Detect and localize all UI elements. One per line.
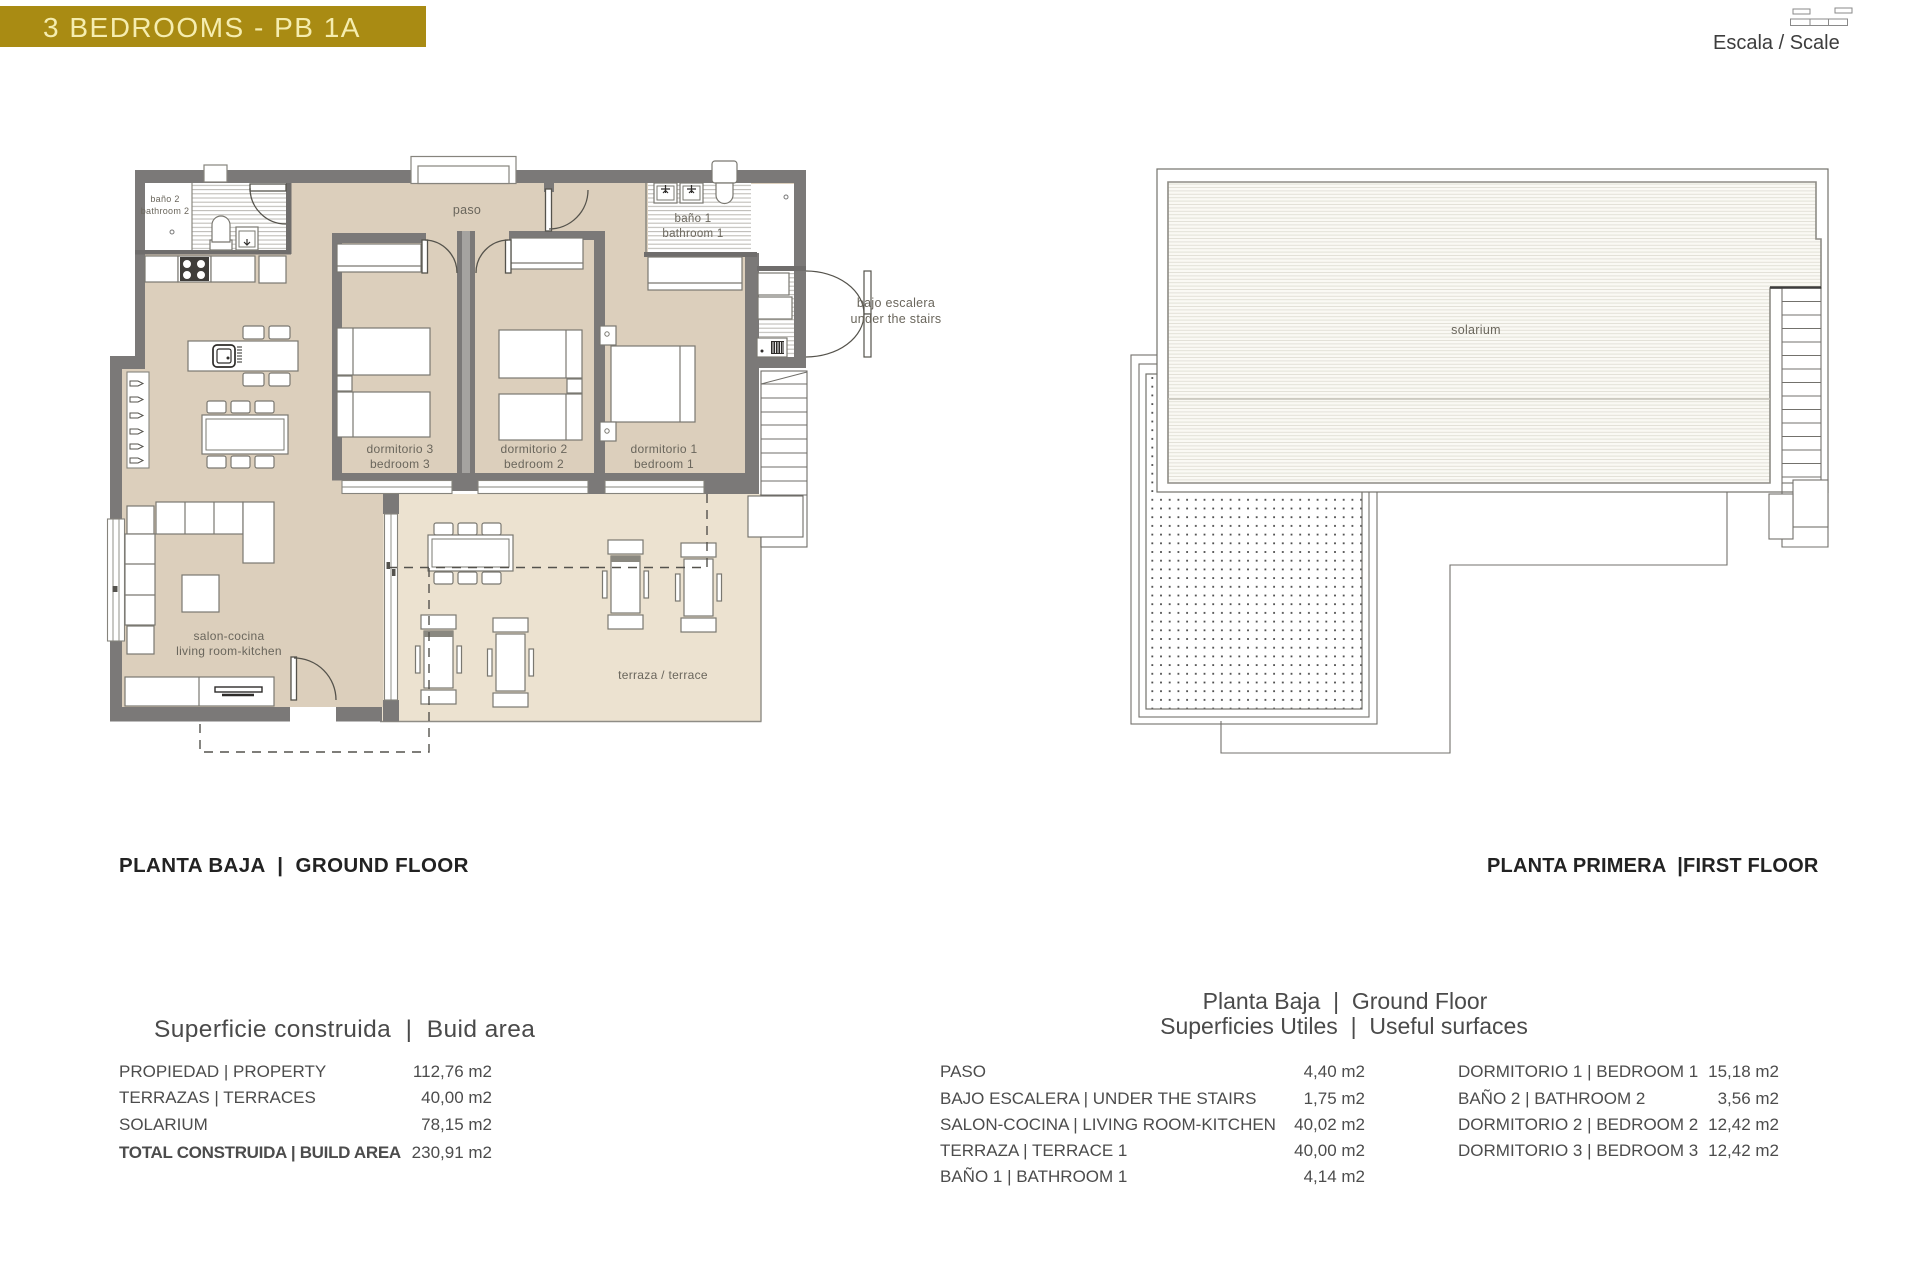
svg-text:bedroom 2: bedroom 2 [504,457,564,471]
svg-text:SOLARIUM: SOLARIUM [119,1115,208,1134]
svg-text:Planta Baja | Ground Floor: Planta Baja | Ground Floor [1203,988,1488,1014]
svg-text:4,40 m2: 4,40 m2 [1304,1062,1365,1081]
svg-text:BAÑO 2 | BATHROOM 2: BAÑO 2 | BATHROOM 2 [1458,1089,1645,1108]
svg-text:40,00 m2: 40,00 m2 [1294,1141,1365,1160]
svg-text:BAJO ESCALERA | UNDER THE STA: BAJO ESCALERA | UNDER THE STAIRS [940,1089,1256,1108]
svg-text:BAÑO 1 | BATHROOM 1: BAÑO 1 | BATHROOM 1 [940,1167,1127,1186]
svg-text:DORMITORIO 3 | BEDROOM 3: DORMITORIO 3 | BEDROOM 3 [1458,1141,1698,1160]
svg-text:3 BEDROOMS - PB 1A: 3 BEDROOMS - PB 1A [43,12,361,43]
svg-text:Escala / Scale: Escala / Scale [1713,32,1840,54]
svg-text:40,02 m2: 40,02 m2 [1294,1115,1365,1134]
svg-text:Superficie construida | Buid: Superficie construida | Buid area [154,1016,535,1043]
svg-text:PLANTA BAJA | GROUND FLOOR: PLANTA BAJA | GROUND FLOOR [119,854,469,877]
svg-text:TERRAZAS | TERRACES: TERRAZAS | TERRACES [119,1088,316,1107]
svg-text:dormitorio 3: dormitorio 3 [367,442,434,456]
svg-text:12,42 m2: 12,42 m2 [1708,1115,1779,1134]
svg-text:PROPIEDAD | PROPERTY: PROPIEDAD | PROPERTY [119,1062,326,1081]
svg-text:baño 1: baño 1 [675,213,712,225]
svg-text:living room-kitchen: living room-kitchen [176,644,282,658]
svg-text:terraza / terrace: terraza / terrace [618,668,708,682]
svg-text:bathroom 2: bathroom 2 [141,206,190,216]
svg-text:1,75 m2: 1,75 m2 [1304,1089,1365,1108]
svg-text:SALON-COCINA | LIVING ROOM-KI: SALON-COCINA | LIVING ROOM-KITCHEN [940,1115,1276,1134]
svg-text:78,15 m2: 78,15 m2 [421,1115,492,1134]
svg-text:112,76 m2: 112,76 m2 [413,1062,492,1081]
svg-text:40,00 m2: 40,00 m2 [421,1088,492,1107]
svg-text:paso: paso [453,203,481,217]
svg-text:3,56 m2: 3,56 m2 [1718,1089,1779,1108]
svg-text:solarium: solarium [1451,323,1501,337]
svg-text:TERRAZA | TERRACE 1: TERRAZA | TERRACE 1 [940,1141,1127,1160]
svg-text:PASO: PASO [940,1062,986,1081]
svg-text:DORMITORIO 1 | BEDROOM 1: DORMITORIO 1 | BEDROOM 1 [1458,1062,1698,1081]
svg-text:bathroom 1: bathroom 1 [662,228,723,240]
svg-text:DORMITORIO 2 | BEDROOM 2: DORMITORIO 2 | BEDROOM 2 [1458,1115,1698,1134]
svg-text:TOTAL CONSTRUIDA | BUILD AREA: TOTAL CONSTRUIDA | BUILD AREA [119,1143,401,1162]
svg-text:bedroom 3: bedroom 3 [370,457,430,471]
svg-text:Superficies Utiles | Useful: Superficies Utiles | Useful surfaces [1160,1013,1528,1039]
svg-text:dormitorio 2: dormitorio 2 [501,442,568,456]
svg-text:salon-cocina: salon-cocina [194,629,265,643]
svg-text:dormitorio 1: dormitorio 1 [631,442,698,456]
svg-text:230,91 m2: 230,91 m2 [412,1143,492,1162]
svg-text:bajo escalera: bajo escalera [857,296,935,310]
svg-text:under the stairs: under the stairs [851,312,942,326]
svg-text:15,18 m2: 15,18 m2 [1708,1062,1779,1081]
svg-text:baño 2: baño 2 [150,194,179,204]
svg-text:bedroom 1: bedroom 1 [634,457,694,471]
svg-text:PLANTA PRIMERA |FIRST FLOOR: PLANTA PRIMERA |FIRST FLOOR [1487,855,1819,877]
svg-text:4,14 m2: 4,14 m2 [1304,1167,1365,1186]
svg-text:12,42 m2: 12,42 m2 [1708,1141,1779,1160]
